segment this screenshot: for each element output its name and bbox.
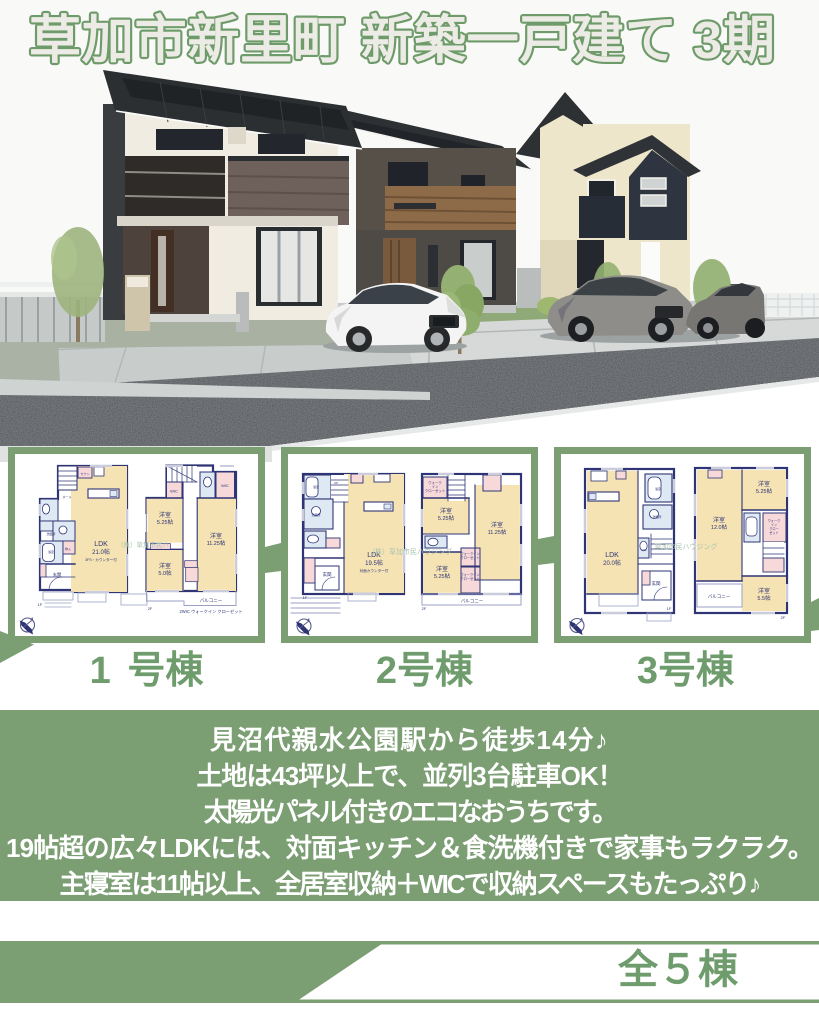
svg-text:草加市新里町 新築一戸建て 3期: 草加市新里町 新築一戸建て 3期 bbox=[29, 12, 776, 70]
